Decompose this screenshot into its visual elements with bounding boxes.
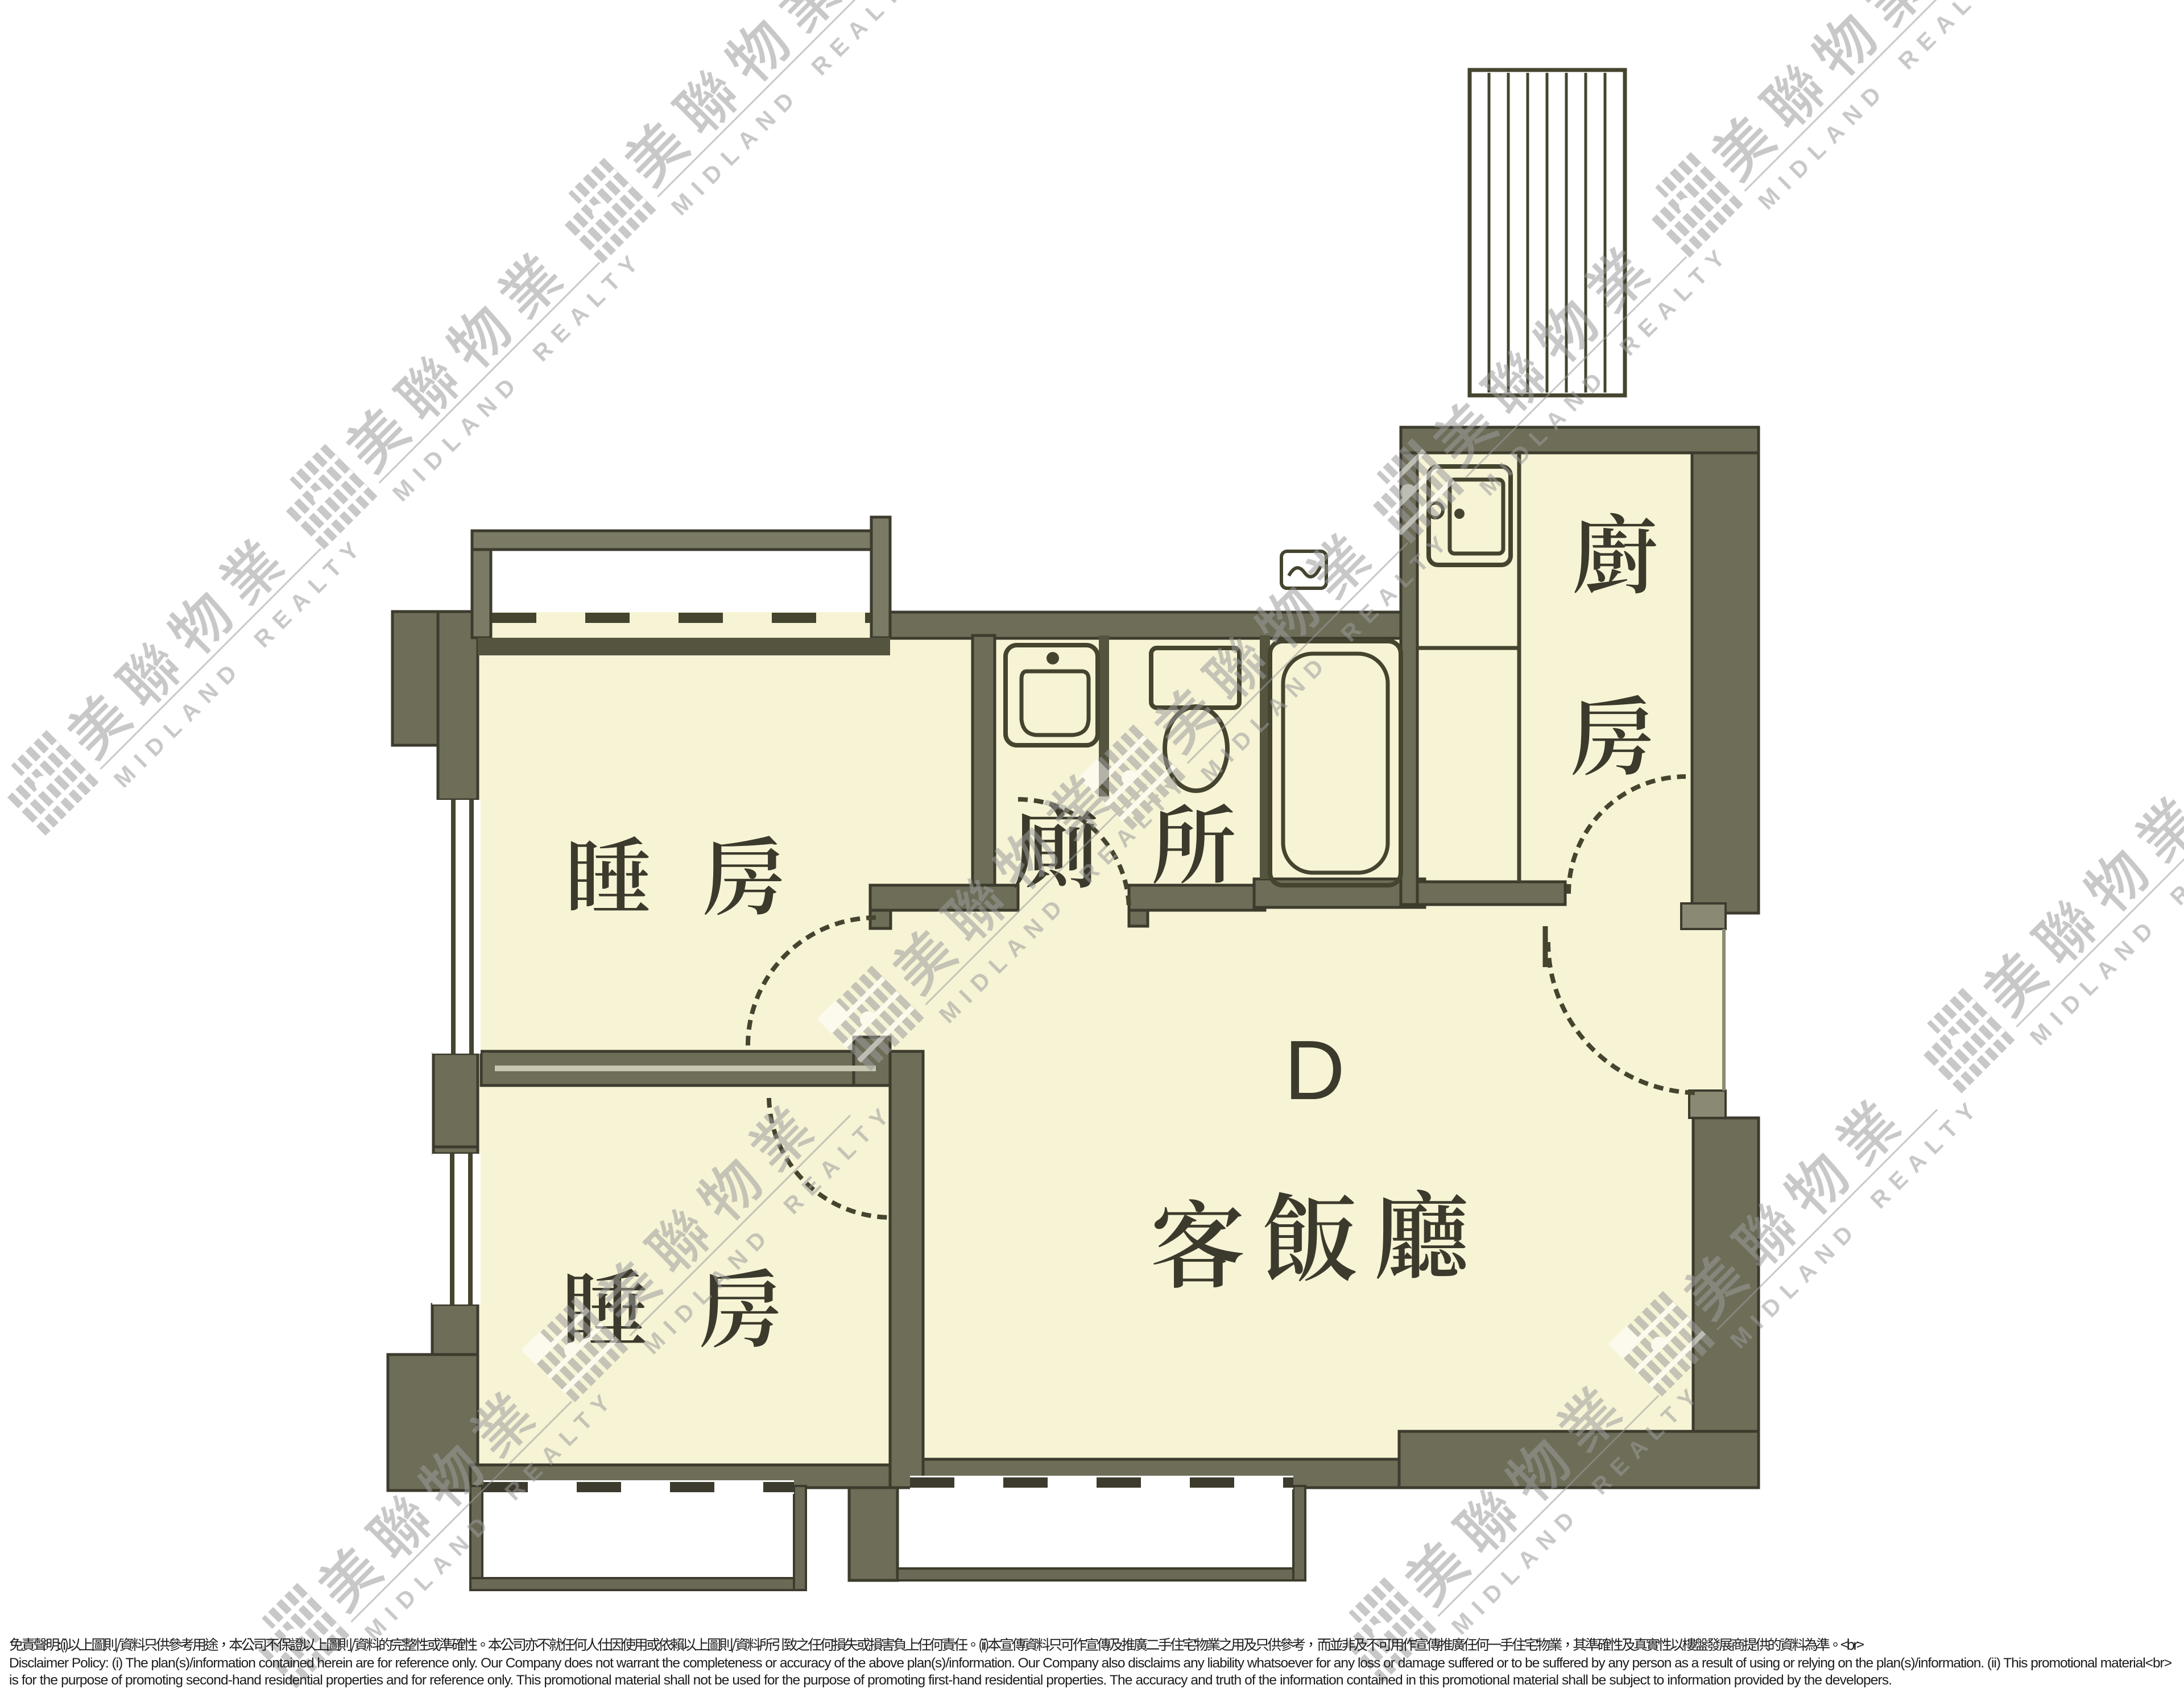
svg-text:睡: 睡 <box>565 810 651 932</box>
svg-text:D: D <box>1284 1023 1345 1117</box>
svg-text:is for the purpose of promotin: is for the purpose of promoting second-h… <box>9 1673 1892 1688</box>
svg-text:房: 房 <box>1570 669 1656 793</box>
svg-text:飯: 飯 <box>1262 1164 1358 1301</box>
svg-text:免責聲明:(i)以上圖則/資料只供參考用途，本公司不保證以上: 免責聲明:(i)以上圖則/資料只供參考用途，本公司不保證以上圖則/資料的完整性或… <box>9 1634 1864 1654</box>
svg-text:客: 客 <box>1150 1171 1246 1308</box>
svg-text:廚: 廚 <box>1572 487 1658 611</box>
svg-text:Disclaimer Policy: (i) The pla: Disclaimer Policy: (i) The plan(s)/infor… <box>9 1655 2172 1671</box>
svg-text:房: 房 <box>702 810 787 932</box>
svg-text:廳: 廳 <box>1374 1162 1470 1299</box>
